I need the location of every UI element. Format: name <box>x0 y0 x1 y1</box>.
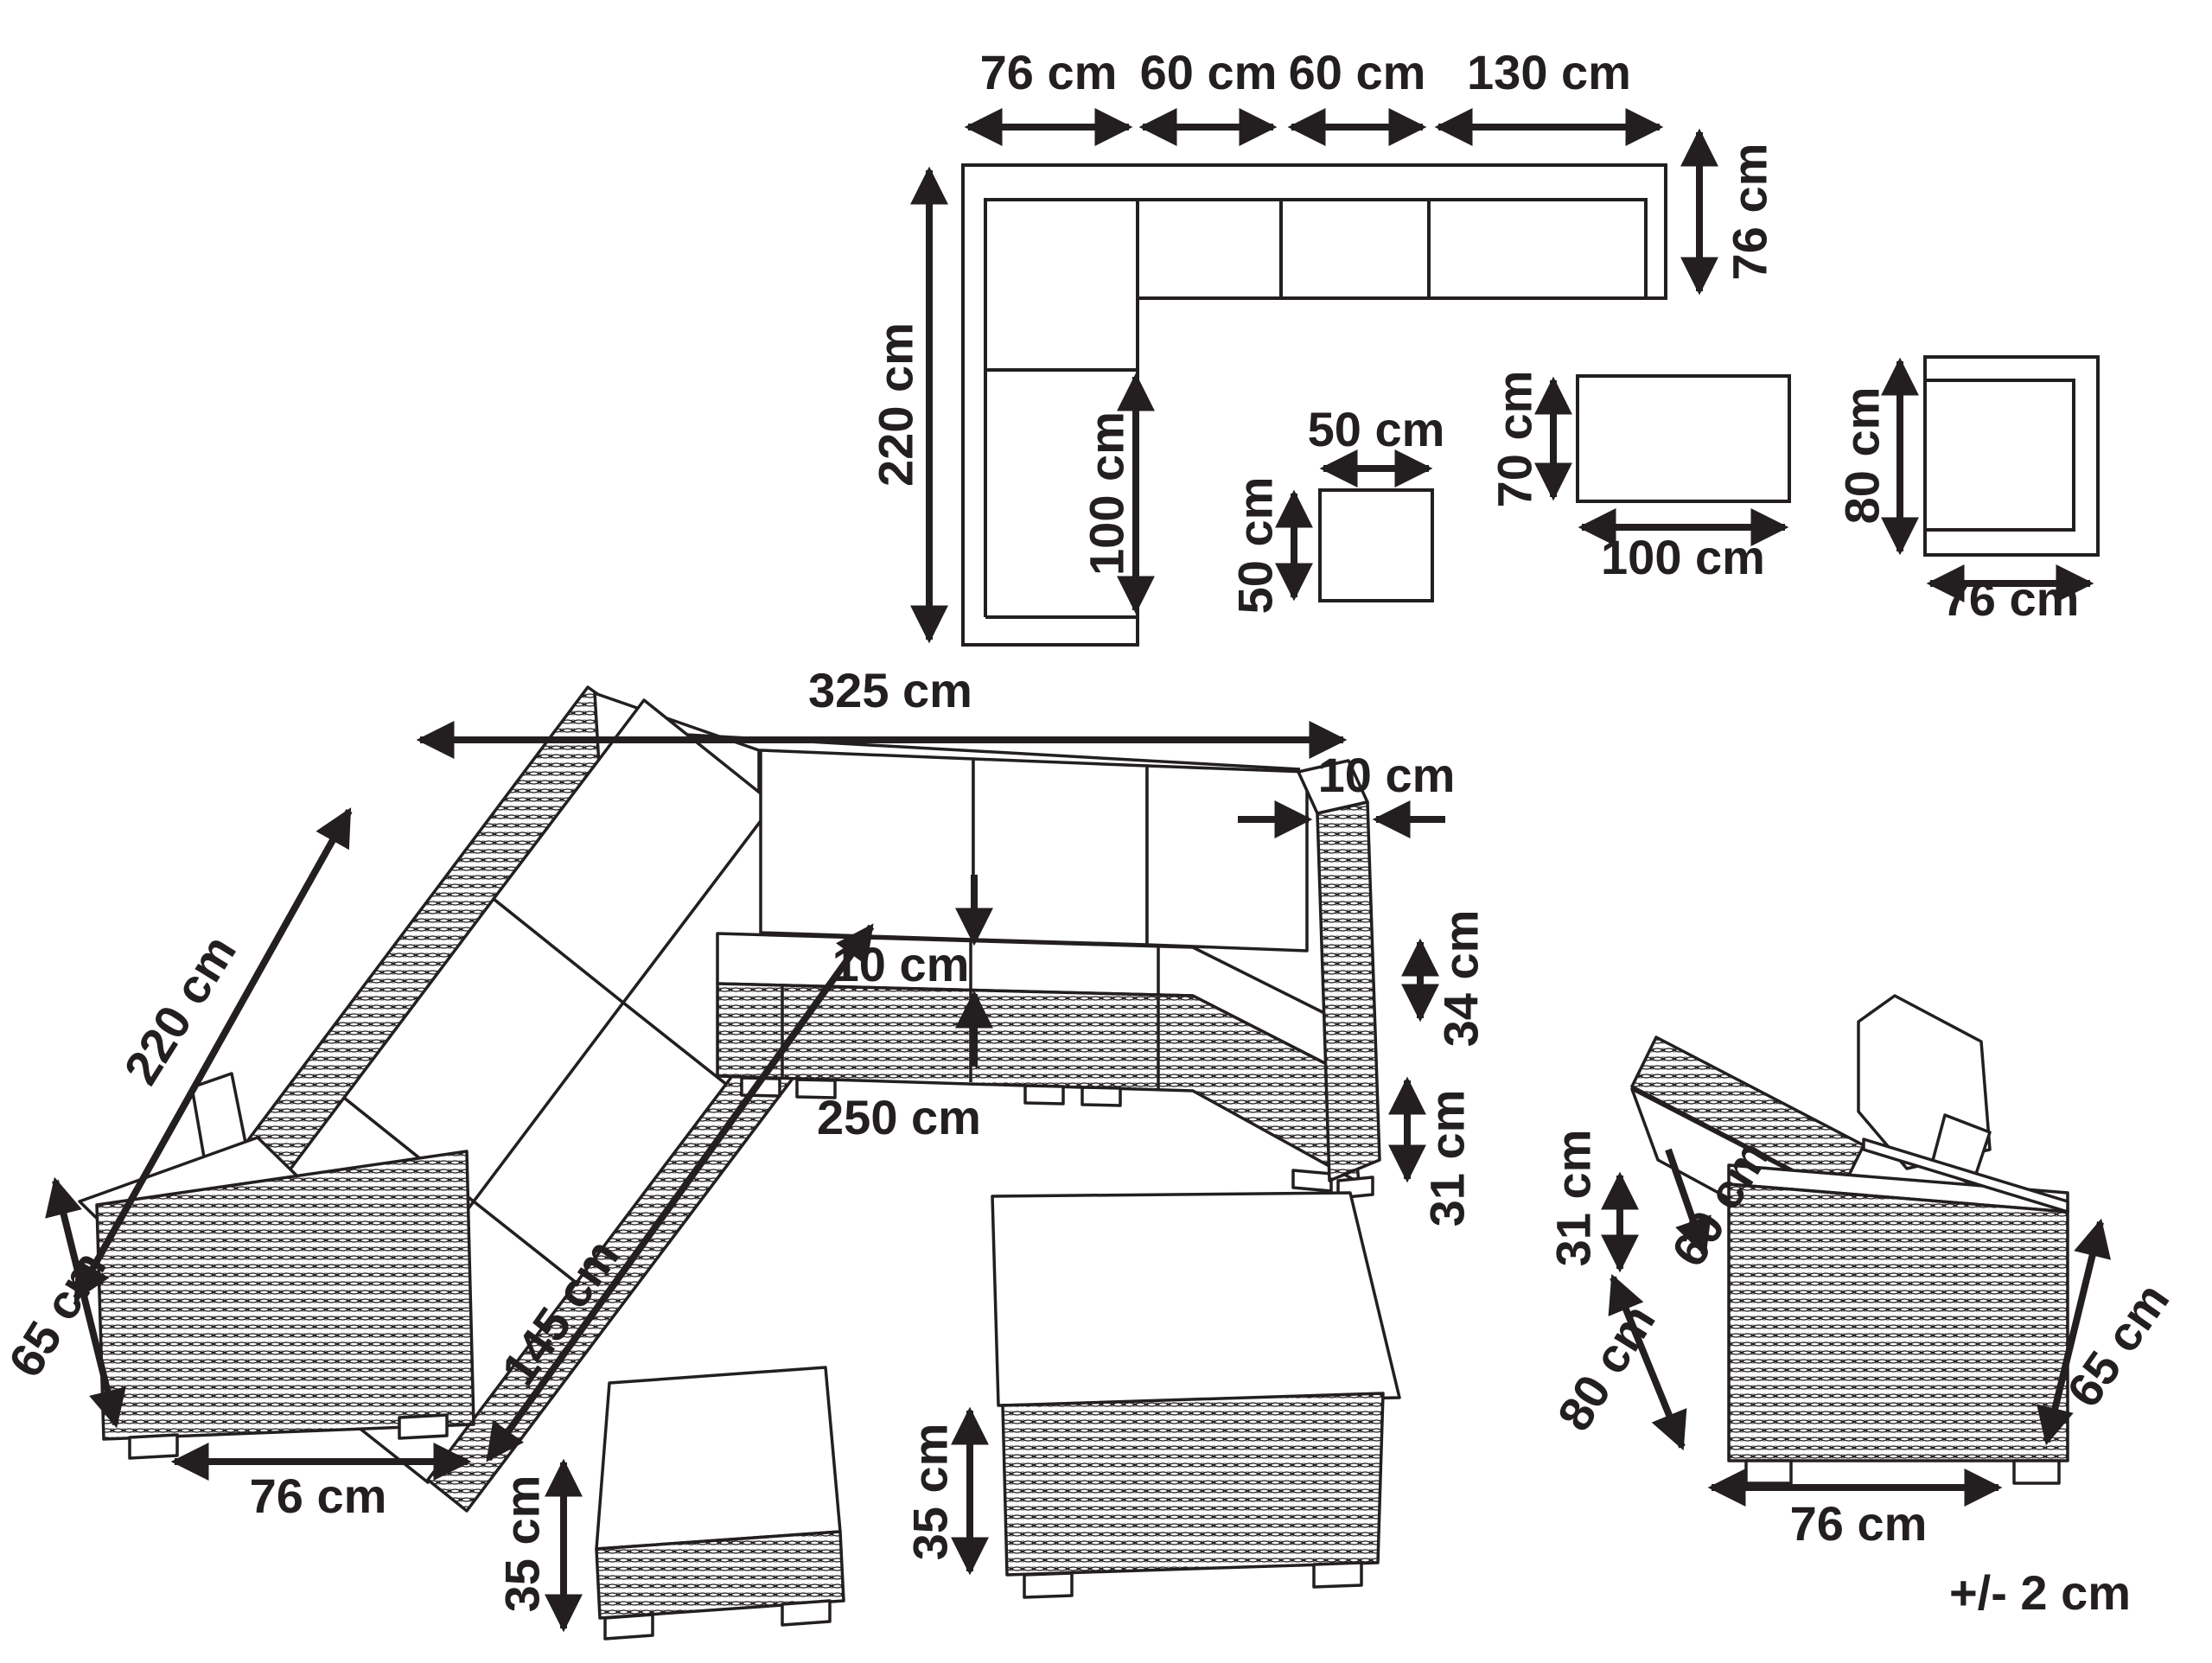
sofa-back-cushion-1 <box>761 750 973 940</box>
sofa-label-arm-width: 76 cm <box>250 1469 387 1523</box>
armchair-label-width: 76 cm <box>1790 1496 1928 1551</box>
sofa-label-base-height: 31 cm <box>1420 1090 1475 1227</box>
armchair-label-armrest-height: 31 cm <box>1546 1130 1601 1267</box>
sofa-back-cushion-3 <box>1147 766 1307 951</box>
sofa-label-total-width: 325 cm <box>808 663 972 717</box>
ottoman-top <box>596 1367 840 1549</box>
plan-label-segment-2: 60 cm <box>1140 45 1278 99</box>
sofa-right-armrest-front <box>1317 802 1380 1181</box>
armchair-foot-left <box>1746 1461 1791 1483</box>
ottoman-foot-right <box>782 1601 830 1625</box>
coffee-table-foot-right <box>1314 1563 1361 1587</box>
coffee-table-top <box>992 1193 1399 1405</box>
plan-label-armchair-depth: 80 cm <box>1835 387 1890 525</box>
sofa-left-arm-foot-right <box>399 1415 447 1438</box>
furniture-dimension-sheet: 76 cm 60 cm 60 cm 130 cm 220 cm 76 cm 10… <box>0 0 2212 1659</box>
plan-label-coffee-table-depth: 70 cm <box>1488 371 1542 508</box>
plan-label-side-table-width: 50 cm <box>1308 402 1445 456</box>
plan-label-left-depth: 220 cm <box>869 322 923 487</box>
plan-label-segment-1: 76 cm <box>980 45 1118 99</box>
sofa-back-cushion-2 <box>973 759 1147 945</box>
plan-label-segment-3: 60 cm <box>1289 45 1426 99</box>
sofa-label-armrest-thickness: 10 cm <box>1318 748 1456 802</box>
ottoman-foot-left <box>605 1615 653 1639</box>
sofa-label-seat-row-width: 250 cm <box>817 1090 981 1144</box>
sofa-foot-4 <box>1082 1087 1120 1105</box>
sofa-foot-3 <box>1025 1086 1063 1104</box>
plan-label-segment-4: 130 cm <box>1467 45 1631 99</box>
coffee-table-base <box>1003 1393 1383 1575</box>
sofa-label-back-height: 34 cm <box>1434 910 1488 1048</box>
plan-label-chaise-length: 100 cm <box>1080 411 1134 576</box>
plan-label-armchair-width: 76 cm <box>1942 571 2080 626</box>
sofa-foot-5 <box>1293 1170 1331 1191</box>
plan-label-coffee-table-width: 100 cm <box>1601 530 1765 584</box>
armchair-front-panel <box>1729 1184 2068 1461</box>
plan-label-side-table-depth: 50 cm <box>1228 477 1283 615</box>
ottoman-label-height: 35 cm <box>495 1475 550 1613</box>
sofa-left-arm-foot-left <box>130 1435 177 1458</box>
plan-label-right-depth: 76 cm <box>1723 143 1777 281</box>
coffee-table-label-height: 35 cm <box>903 1424 958 1561</box>
sofa-label-cushion-thickness: 10 cm <box>832 937 970 991</box>
dimension-diagram: 76 cm 60 cm 60 cm 130 cm 220 cm 76 cm 10… <box>0 0 2212 1659</box>
tolerance-note: +/- 2 cm <box>1949 1565 2131 1620</box>
armchair-foot-right <box>2014 1461 2059 1483</box>
coffee-table-foot-left <box>1024 1573 1072 1597</box>
